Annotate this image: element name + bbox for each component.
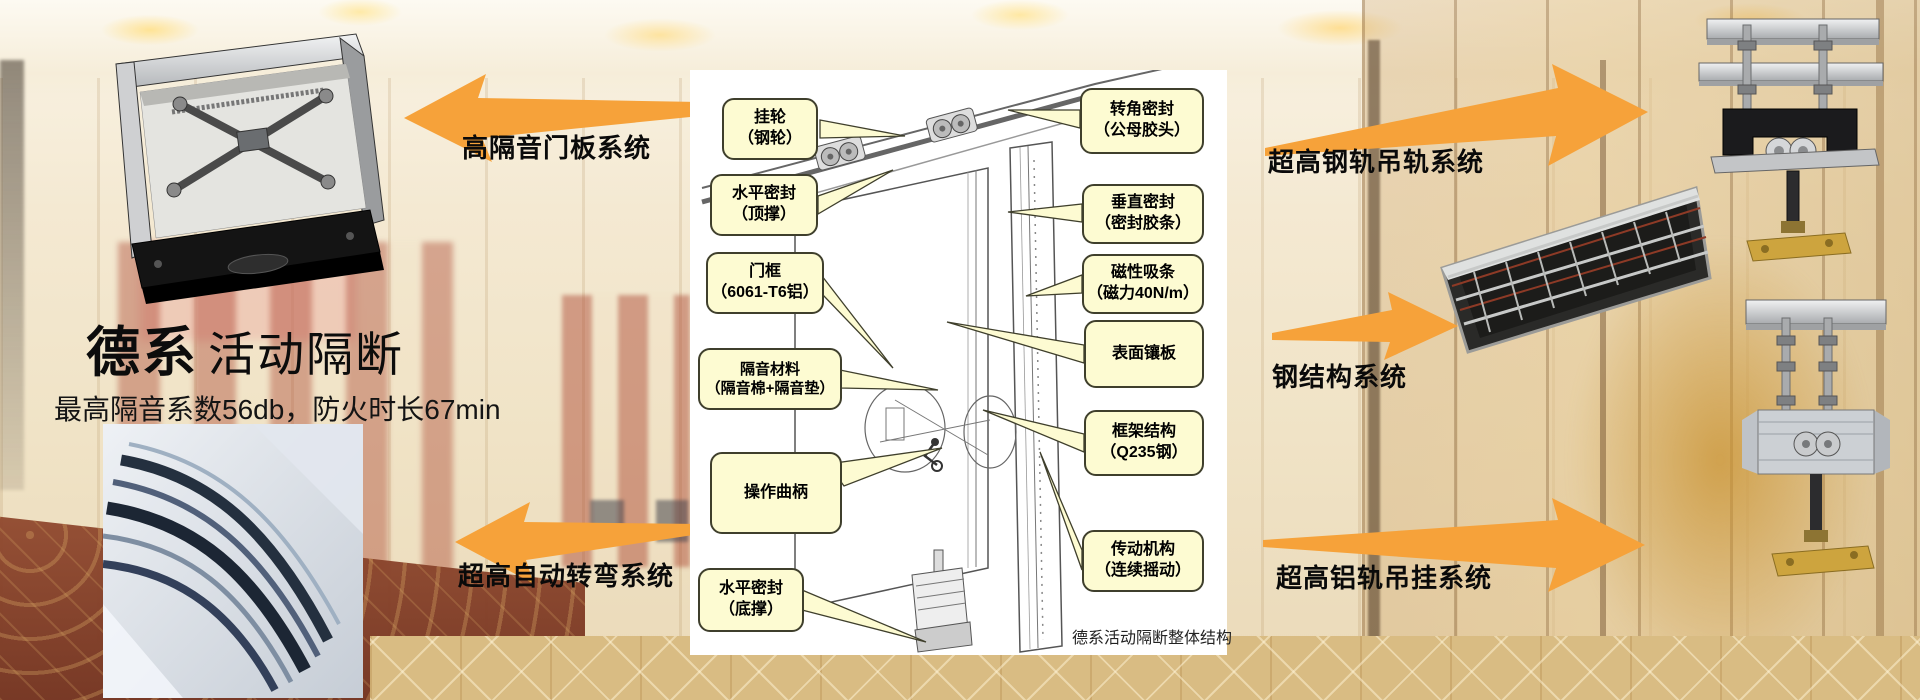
callout-vertical-seal: 垂直密封 （密封胶条） [1082,184,1204,244]
brand-suffix: 活动隔断 [208,328,404,381]
steel-structure-photo [1428,182,1728,357]
trolley-icon [813,135,866,171]
callout-line: 传动机构 [1111,540,1175,561]
brand-name: 德系 [86,323,198,383]
callout-line: （钢轮） [738,129,802,150]
callout-line: 门框 [749,262,781,283]
callout-line: （隔音棉+隔音垫） [706,379,835,399]
label-steel-structure-system: 钢结构系统 [1272,357,1407,394]
label-steel-rail-system: 超高钢轨吊轨系统 [1268,142,1484,179]
callout-sound-insulation: 隔音材料 （隔音棉+隔音垫） [698,348,842,410]
callout-surface-panel: 表面镶板 [1084,320,1204,388]
callout-line: （公母胶头） [1094,121,1190,142]
callout-line: 磁性吸条 [1111,263,1175,284]
callout-line: （Q235钢） [1100,443,1187,464]
label-aluminum-rail-system: 超高铝轨吊挂系统 [1276,558,1492,595]
steel-hanger-photo [1695,5,1890,270]
page-subtitle: 最高隔音系数56db，防火时长67min [54,388,501,428]
trolley-icon [925,107,978,143]
curved-track-photo [103,424,363,698]
callout-line: （顶撑） [732,205,796,226]
promo-graphic: 德系活动隔断 最高隔音系数56db，防火时长67min 高隔音门 [0,0,1920,700]
callout-line: （磁力40N/m） [1087,284,1199,305]
callout-line: 水平密封 [732,184,796,205]
callout-line: （6061-T6铝） [711,283,819,304]
door-top-mechanism-photo [88,12,398,304]
label-door-panel-system: 高隔音门板系统 [462,128,651,165]
callout-drive-mechanism: 传动机构 （连续摇动） [1082,530,1204,592]
bg-left-door-edge [0,60,24,490]
callout-line: 框架结构 [1112,422,1176,443]
callout-line: 水平密封 [719,579,783,600]
callout-line: 隔音材料 [740,360,800,380]
callout-bottom-seal: 水平密封 （底撑） [698,568,804,632]
callout-line: 挂轮 [754,108,786,129]
callout-corner-seal: 转角密封 （公母胶头） [1080,88,1204,154]
callout-line: （底撑） [719,600,783,621]
callout-line: 表面镶板 [1112,344,1176,365]
callout-line: 垂直密封 [1111,193,1175,214]
callout-hanging-wheel: 挂轮 （钢轮） [722,98,818,160]
callout-line: 操作曲柄 [744,483,808,504]
callout-line: 转角密封 [1110,100,1174,121]
callout-line: （连续摇动） [1095,561,1191,582]
bg-grey-segment [656,500,688,542]
callout-door-frame: 门框 （6061-T6铝） [706,252,824,314]
callout-top-seal: 水平密封 （顶撑） [710,174,818,236]
bg-grey-segment [590,500,624,542]
callout-operating-crank: 操作曲柄 [710,452,842,534]
aluminum-hanger-photo [1728,292,1903,592]
callout-frame-structure: 框架结构 （Q235钢） [1084,410,1204,476]
label-auto-turning-system: 超高自动转弯系统 [458,556,674,593]
callout-magnetic-strip: 磁性吸条 （磁力40N/m） [1082,254,1204,314]
diagram-caption: 德系活动隔断整体结构 [1072,624,1232,648]
page-title: 德系活动隔断 [86,308,404,387]
callout-line: （密封胶条） [1095,214,1191,235]
